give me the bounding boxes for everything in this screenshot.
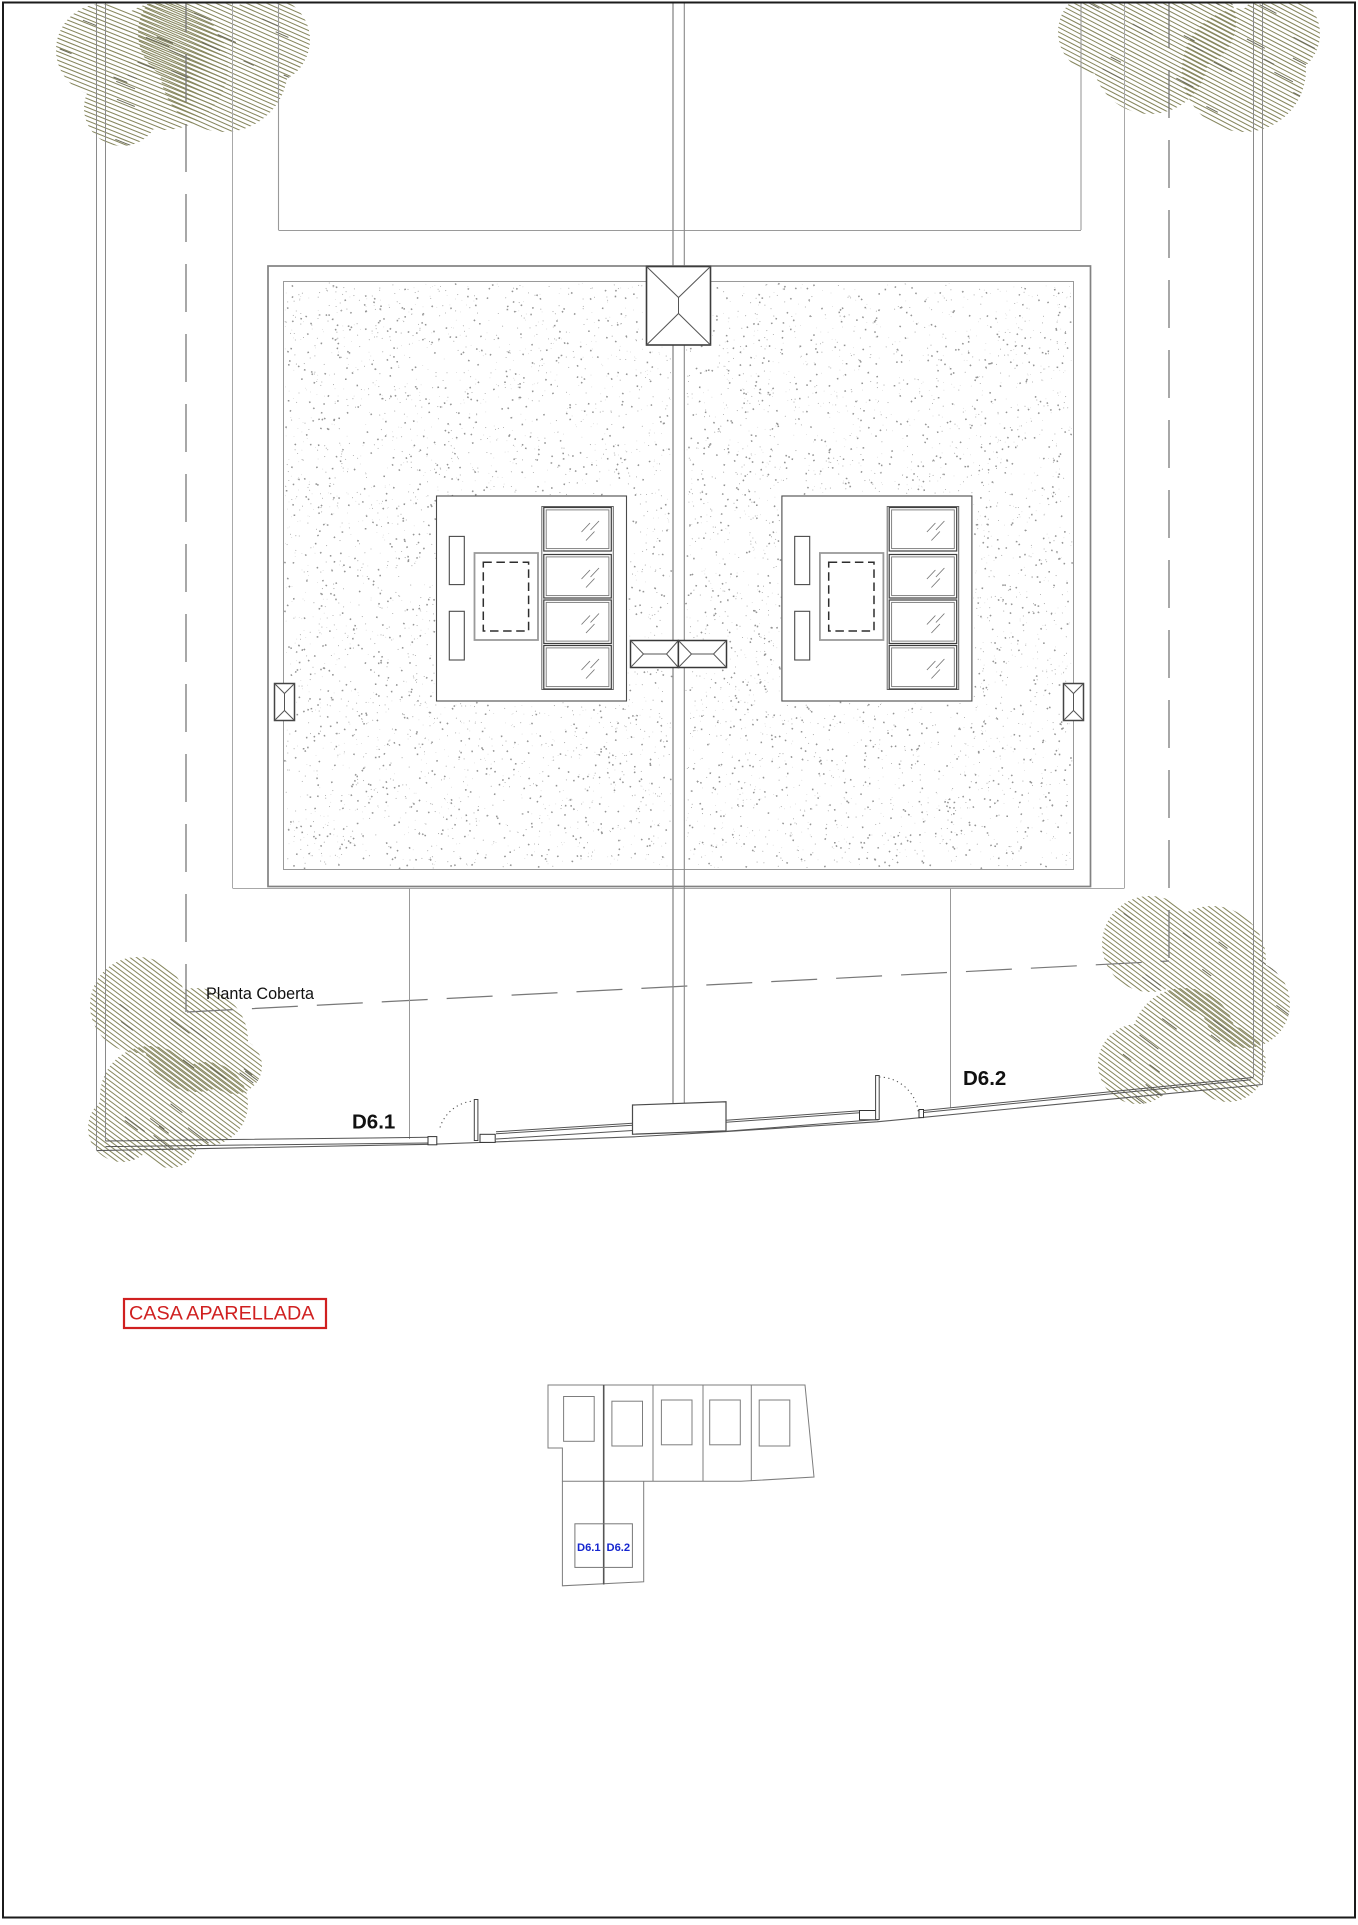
svg-text:D6.1: D6.1 [352, 1111, 395, 1134]
svg-text:CASA APARELLADA: CASA APARELLADA [129, 1303, 315, 1325]
svg-text:D6.2: D6.2 [963, 1067, 1006, 1090]
svg-text:D6.2: D6.2 [607, 1542, 631, 1554]
svg-text:Planta Coberta: Planta Coberta [206, 985, 314, 1003]
svg-text:D6.1: D6.1 [577, 1542, 601, 1554]
